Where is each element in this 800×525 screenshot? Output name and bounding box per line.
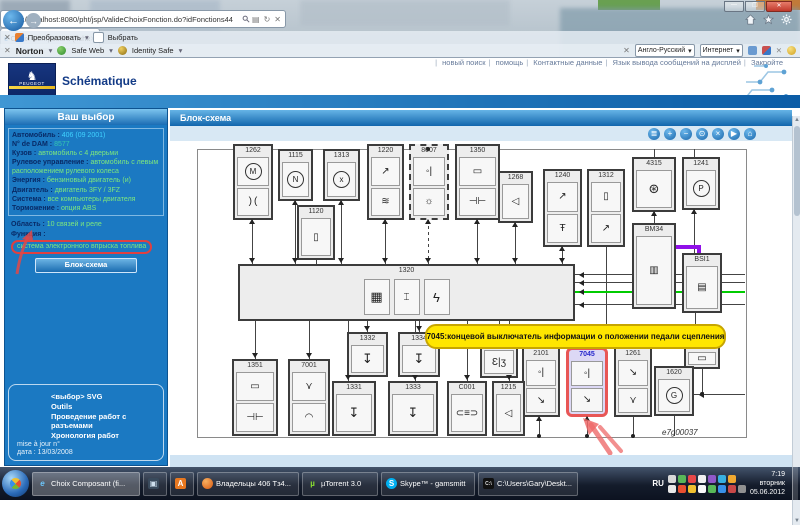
component-box-coil[interactable]: Ɛ|ʒ xyxy=(480,346,518,378)
vehicle-row: N° de DAM : 8577 xyxy=(12,140,160,149)
arrowhead-icon xyxy=(576,289,584,295)
component-box-C001[interactable]: C001⊂≡⊃ xyxy=(447,381,487,436)
component-symbols: ⊂≡⊃ xyxy=(449,392,485,434)
tray-icon[interactable] xyxy=(688,485,696,493)
component-symbols: ▯↗ xyxy=(589,180,623,245)
component-tooltip: 7045:концевой выключатель информации о п… xyxy=(425,324,726,349)
tray-icon[interactable] xyxy=(698,485,706,493)
scroll-up-icon[interactable]: ▲ xyxy=(793,117,800,123)
home-icon[interactable]: ⌂ xyxy=(744,128,756,140)
sidebar-footer-link[interactable]: <выбор> SVG xyxy=(51,392,163,401)
language-indicator[interactable]: RU xyxy=(652,479,664,488)
nav-link[interactable]: новый поиск xyxy=(442,58,485,67)
tray-icon[interactable] xyxy=(738,485,746,493)
command-bar: ✕ Преобразовать ▾ Выбрать xyxy=(0,31,800,44)
tray-icon[interactable] xyxy=(718,475,726,483)
tray-icon[interactable] xyxy=(718,485,726,493)
row-label: Кузов : xyxy=(12,150,38,157)
tray-icon[interactable] xyxy=(698,475,706,483)
select-button[interactable]: Выбрать xyxy=(108,33,138,42)
component-box-1261[interactable]: 1261↘⋎ xyxy=(614,347,652,417)
safe-web-icon xyxy=(57,46,66,55)
identity-safe-icon xyxy=(118,46,127,55)
taskbar-buttons: eChoix Composant (fi...▣AВладельцы 406 Т… xyxy=(32,472,578,496)
settings-gear-icon[interactable] xyxy=(781,14,792,25)
page-scrollbar[interactable]: ▲ ▼ xyxy=(792,116,800,525)
start-button[interactable] xyxy=(2,470,29,497)
component-symbols: ◦|↘ xyxy=(569,359,605,414)
vehicle-row: Двигатель : двигатель 3FY / 3FZ xyxy=(12,186,160,195)
component-label: 1215 xyxy=(494,383,523,392)
row-label: Функция : xyxy=(11,231,46,238)
component-box-7001[interactable]: 7001⋎◠ xyxy=(288,359,330,436)
arrowhead-icon xyxy=(651,208,657,216)
clock-day: вторник xyxy=(750,479,785,488)
component-box-1351[interactable]: 1351▭⊣⊢ xyxy=(232,359,278,436)
arrowhead-icon xyxy=(249,258,255,266)
circle-symbol: x xyxy=(333,171,350,188)
component-symbols: ⋎◠ xyxy=(290,370,328,434)
flap-symbol-icon: ↗ xyxy=(591,214,621,244)
taskbar-button-label: µTorrent 3.0 xyxy=(321,479,361,488)
component-symbols: ◦|☼ xyxy=(411,155,447,218)
home-icon[interactable] xyxy=(745,14,756,25)
arrowhead-icon xyxy=(512,258,518,266)
app-icon: ▣ xyxy=(148,478,159,489)
diagram-toolbar: ≣+−⊙×▶⌂ xyxy=(170,126,792,141)
motor-symbol-icon: M xyxy=(237,157,269,186)
flap-symbol-icon: ↗ xyxy=(547,182,578,212)
arrowhead-icon xyxy=(512,219,518,227)
arrowhead-icon xyxy=(559,243,565,251)
wire-line xyxy=(702,369,703,394)
app-title: Schématique xyxy=(62,74,137,88)
search-icon[interactable] xyxy=(242,15,250,23)
addons-icon[interactable] xyxy=(762,46,771,55)
chevron-down-icon: ▾ xyxy=(688,47,692,55)
chevron-down-icon: ▾ xyxy=(736,47,740,55)
wire-line xyxy=(606,247,607,331)
tray-icon[interactable] xyxy=(728,485,736,493)
taskbar-button-utorrent[interactable]: µµTorrent 3.0 xyxy=(302,472,378,496)
wire-line xyxy=(341,201,342,264)
component-symbols: ▭⊣⊢ xyxy=(457,155,498,218)
arrowhead-icon xyxy=(576,302,584,308)
tray-icon[interactable] xyxy=(678,485,686,493)
vehicle-row: Кузов : автомобиль с 4 дверьми xyxy=(12,149,160,158)
component-box-1120[interactable]: 1120▯ xyxy=(297,205,335,260)
arrowhead-icon xyxy=(425,216,431,224)
tray-icon-row xyxy=(668,475,746,483)
sidebar-footer-link[interactable]: Outils xyxy=(51,402,163,411)
contact-symbol-icon: ◦| xyxy=(413,157,445,186)
component-label: C001 xyxy=(449,383,485,392)
temp-symbol-icon: ≋ xyxy=(371,188,400,217)
component-symbols: ▯ xyxy=(299,216,333,258)
arrowhead-icon xyxy=(691,206,697,214)
firefox-icon xyxy=(202,478,213,489)
arrowhead-icon xyxy=(536,413,542,421)
component-label: BM34 xyxy=(634,225,674,234)
diode-symbol-icon: ◁ xyxy=(502,184,529,219)
clock-date: 05.06.2012 xyxy=(750,488,785,497)
component-box-7045[interactable]: 7045◦|↘ xyxy=(566,347,608,417)
annotation-oval: система электронного впрыска топлива xyxy=(11,240,152,254)
tray-icon[interactable] xyxy=(728,475,736,483)
image-menu-icon[interactable] xyxy=(748,46,757,55)
taskbar-button-label: Skype™ - gamsmitt xyxy=(400,479,465,488)
safe-web-button[interactable]: Safe Web xyxy=(71,46,104,55)
component-box-1262[interactable]: 1262M) ( xyxy=(233,144,273,220)
row-label: Рулевое управление : xyxy=(12,159,90,166)
arrowhead-icon xyxy=(474,216,480,224)
vehicle-row: Торможение : опция ABS xyxy=(12,204,160,213)
scroll-down-icon[interactable]: ▼ xyxy=(793,518,800,524)
play-icon[interactable]: ▶ xyxy=(728,128,740,140)
close-addon-icon[interactable]: ✕ xyxy=(623,46,630,55)
taskbar-button-skype[interactable]: SSkype™ - gamsmitt xyxy=(381,472,475,496)
component-label: 1333 xyxy=(390,383,436,392)
convert-button[interactable]: Преобразовать xyxy=(28,33,81,42)
row-label: Двигатель : xyxy=(12,187,55,194)
language-dropdown[interactable]: Англо-Русский▾ xyxy=(635,44,695,57)
compatibility-icon[interactable]: ▤ xyxy=(252,15,260,24)
throttle-symbol-icon: ) ( xyxy=(237,188,269,217)
diagram-header: Блок-схема xyxy=(170,110,792,126)
arrowhead-icon xyxy=(416,326,422,334)
address-bar[interactable]: e http://localhost:8080/pht/jsp/ValideCh… xyxy=(0,10,286,28)
main-panel: Блок-схема ≣+−⊙×▶⌂ 1262M) (1115N1313x112… xyxy=(170,110,792,467)
component-box-1215[interactable]: 1215◁ xyxy=(492,381,525,436)
piston-symbol-icon: ▯ xyxy=(591,182,621,212)
component-label: 1313 xyxy=(325,151,358,160)
tray-icon[interactable] xyxy=(708,485,716,493)
abbyy-icon: A xyxy=(175,478,186,489)
tray-icon[interactable] xyxy=(668,475,676,483)
vehicle-row: Рулевое управление : автомобиль с левым … xyxy=(12,158,160,176)
row-label: Торможение : xyxy=(12,205,61,212)
row-value: 8577 xyxy=(54,141,70,148)
arrowhead-icon xyxy=(464,375,470,383)
taskbar-button-firefox[interactable]: Владельцы 406 Тз4... xyxy=(197,472,299,496)
component-symbols: ▭ xyxy=(686,350,718,367)
component-label: 1350 xyxy=(457,146,498,155)
component-symbols: ▦⌶ϟ xyxy=(240,275,573,319)
component-label: 2101 xyxy=(524,349,558,358)
gauge-symbol-icon: ◠ xyxy=(292,403,326,432)
identity-safe-button[interactable]: Identity Safe xyxy=(132,46,174,55)
row-value: 10 связей и реле xyxy=(47,221,102,228)
browser-action-icons xyxy=(745,14,792,25)
circleG-symbol-icon: G xyxy=(658,379,690,412)
junction-dot xyxy=(631,434,635,438)
row-value: опция ABS xyxy=(61,205,96,212)
circle-symbol: P xyxy=(693,180,710,197)
circleP-symbol-icon: P xyxy=(686,170,716,206)
taskbar-button-label: C:\Users\Gary\Deskt... xyxy=(497,479,572,488)
component-label: BSI1 xyxy=(684,255,720,264)
norton-brand[interactable]: Norton xyxy=(16,46,44,56)
row-label: Автомобиль : xyxy=(12,132,62,139)
component-box-1620[interactable]: 1620G xyxy=(654,366,694,416)
arrowhead-icon xyxy=(559,258,565,266)
component-label: 1240 xyxy=(545,171,580,180)
vehicle-row: Автомобиль : 406 (09 2001) xyxy=(12,131,160,140)
component-label: 1241 xyxy=(684,159,718,168)
tray-icon[interactable] xyxy=(678,475,686,483)
peugeot-logo: ♞ PEUGEOT xyxy=(8,63,56,97)
component-box-1220[interactable]: 1220↗≋ xyxy=(367,144,404,220)
switch-symbol-icon: ↘ xyxy=(571,388,603,413)
arrowhead-icon xyxy=(249,216,255,224)
junction-dot xyxy=(537,434,541,438)
component-label: 1351 xyxy=(234,361,276,370)
refresh-icon[interactable]: ↻ xyxy=(264,15,271,24)
arrowhead-icon xyxy=(252,353,258,361)
taskbar-clock[interactable]: 7:19 вторник 05.06.2012 xyxy=(750,470,788,497)
taskbar-button-abbyy[interactable]: A xyxy=(170,472,194,496)
sidebar-footer-meta: дата : 13/03/2008 xyxy=(17,449,163,456)
convert-icon xyxy=(15,33,24,42)
contact-symbol-icon: ◦| xyxy=(571,361,603,386)
stop-icon[interactable]: ✕ xyxy=(274,15,281,24)
lightning-symbol-icon: ϟ xyxy=(424,279,450,315)
arrowhead-icon xyxy=(576,280,584,286)
browser-navigation-row: ← → e http://localhost:8080/pht/jsp/Vali… xyxy=(0,10,800,32)
arrowhead-icon xyxy=(292,197,298,205)
taskbar-button-app[interactable]: ▣ xyxy=(143,472,167,496)
component-symbols: Ɛ|ʒ xyxy=(482,348,516,376)
component-symbols: ▤ xyxy=(684,264,720,311)
injector-symbol-icon: ↧ xyxy=(336,394,372,432)
sidebar-title: Ваш выбор xyxy=(5,109,167,125)
sidebar-footer-link[interactable]: Проведение работ с разъемами xyxy=(51,412,163,430)
component-box-2101[interactable]: 2101◦|↘ xyxy=(522,347,560,417)
wire-line xyxy=(654,149,655,157)
component-label: 1320 xyxy=(240,266,573,275)
arrowhead-icon xyxy=(338,197,344,205)
component-label: 7001 xyxy=(290,361,328,370)
arrowhead-icon xyxy=(345,375,351,383)
component-box-1350[interactable]: 1350▭⊣⊢ xyxy=(455,144,500,220)
component-box-BSI1[interactable]: BSI1▤ xyxy=(682,253,722,313)
component-symbols: ↧ xyxy=(349,343,386,375)
component-label: 1262 xyxy=(235,146,271,155)
component-symbols: P xyxy=(684,168,718,208)
row-value: все компьютеры двигателя xyxy=(48,196,136,203)
junction-dot xyxy=(700,392,704,396)
vehicle-row: Энергия : бензиновый двигатель (и) xyxy=(12,176,160,185)
back-button[interactable]: ← xyxy=(3,10,24,31)
peugeot-lion-icon: ♞ xyxy=(27,71,38,81)
capacitor-symbol-icon: ⊣⊢ xyxy=(459,188,496,217)
arrowhead-icon xyxy=(576,272,584,278)
arrowhead-icon xyxy=(364,326,370,334)
taskbar-button-cmd[interactable]: C:\C:\Users\Gary\Deskt... xyxy=(478,472,578,496)
component-box-8007[interactable]: 8007◦|☼ xyxy=(409,144,449,220)
block-diagram-button[interactable]: Блок-схема xyxy=(35,258,137,273)
wire-line xyxy=(295,201,296,264)
component-box-BM34[interactable]: BM34▥ xyxy=(632,223,676,309)
row-value: автомобиль с 4 дверьми xyxy=(38,150,118,157)
utorrent-icon: µ xyxy=(307,478,318,489)
web-page: | новый поиск| помощь| Контактные данные… xyxy=(0,58,800,467)
piston-symbol-icon: ▯ xyxy=(301,218,331,256)
component-box-1241[interactable]: 1241P xyxy=(682,157,720,210)
component-symbols: ◦|↘ xyxy=(524,358,558,415)
logo-yellow-bar xyxy=(9,86,55,89)
capacitor-symbol-icon: ⊣⊢ xyxy=(236,403,274,432)
print-icon[interactable]: ≣ xyxy=(648,128,660,140)
norton-toolbar: ✕ Norton ▾ Safe Web ▾ Identity Safe ▾ ✕ … xyxy=(0,44,800,58)
component-box-1333[interactable]: 1333↧ xyxy=(388,381,438,436)
component-symbols: ↧ xyxy=(334,392,374,434)
component-box-1331[interactable]: 1331↧ xyxy=(332,381,376,436)
taskbar-button-label: Choix Composant (fi... xyxy=(51,479,125,488)
component-box-1240[interactable]: 1240↗Ŧ xyxy=(543,169,582,247)
component-symbols: x xyxy=(325,160,358,199)
arrowhead-icon xyxy=(584,413,590,421)
ecu-symbol-icon: ▥ xyxy=(636,236,672,305)
tools-cut-icon[interactable]: ✕ xyxy=(776,46,782,55)
bulb-icon[interactable] xyxy=(787,46,796,55)
nav-link[interactable]: помощь xyxy=(496,58,524,67)
close-toolbar-icon[interactable]: ✕ xyxy=(4,33,11,42)
cmd-icon: C:\ xyxy=(483,478,494,489)
row-value: бензиновый двигатель (и) xyxy=(47,177,131,184)
windows-taskbar: eChoix Composant (fi...▣AВладельцы 406 Т… xyxy=(0,467,800,500)
circle-symbol: M xyxy=(245,163,262,180)
component-label: 1261 xyxy=(616,349,650,358)
switch-symbol-icon: ↘ xyxy=(618,360,648,386)
taskbar-button-ie[interactable]: eChoix Composant (fi... xyxy=(32,472,140,496)
component-symbols: N xyxy=(280,160,311,199)
arrowhead-icon xyxy=(474,258,480,266)
ie-icon: e xyxy=(37,478,48,489)
resistor-symbol-icon: ▭ xyxy=(459,157,496,186)
main-footer-strip xyxy=(170,455,792,467)
component-label: 1220 xyxy=(369,146,402,155)
browser-chrome: — ❐ ✕ ← → e http://localhost:8080/pht/js… xyxy=(0,0,800,58)
row-label: N° de DAM : xyxy=(12,141,54,148)
circleX-symbol-icon: x xyxy=(327,162,356,197)
header-band xyxy=(0,95,800,108)
skype-icon: S xyxy=(386,478,397,489)
mini-symbol-icon: ▭ xyxy=(688,352,716,365)
zoom-in-icon[interactable]: + xyxy=(664,128,676,140)
zone-dropdown[interactable]: Интернет▾ xyxy=(700,44,743,57)
magnifier-icon[interactable]: ⊙ xyxy=(696,128,708,140)
component-label: 7045 xyxy=(569,350,605,359)
zoom-out-icon[interactable]: − xyxy=(680,128,692,140)
switch-symbol-icon: ↘ xyxy=(526,388,556,414)
scrollbar-thumb[interactable] xyxy=(794,126,800,216)
chevron-down-icon: ▾ xyxy=(179,46,183,55)
component-symbols: G xyxy=(656,377,692,414)
circleN-symbol-icon: N xyxy=(282,162,309,197)
component-box-1313[interactable]: 1313x xyxy=(323,149,360,201)
diagram-reference: e7g00037 xyxy=(662,428,698,437)
tempkey-symbol-icon: Ŧ xyxy=(547,214,578,244)
tray-icon[interactable] xyxy=(668,485,676,493)
arrowhead-icon xyxy=(306,353,312,361)
component-box-1115[interactable]: 1115N xyxy=(278,149,313,201)
chevron-down-icon: ▾ xyxy=(49,46,53,55)
sidebar-footer-panel: <выбор> SVGOutilsПроведение работ с разъ… xyxy=(8,384,164,461)
component-box-1320[interactable]: 1320▦⌶ϟ xyxy=(238,264,575,321)
tray-icon[interactable] xyxy=(688,475,696,483)
tray-icon[interactable] xyxy=(708,475,716,483)
selection-row: Область : 10 связей и реле xyxy=(11,220,161,230)
component-label: 1268 xyxy=(500,173,531,182)
wye-symbol-icon: ⋎ xyxy=(292,372,326,401)
arrowhead-icon xyxy=(506,375,512,383)
junction-dot xyxy=(426,147,430,151)
component-symbols: ◁ xyxy=(494,392,523,434)
component-label: 1331 xyxy=(334,383,374,392)
component-label: 1312 xyxy=(589,171,623,180)
component-symbols: ⊛ xyxy=(634,168,674,210)
selection-row: Функция : система электронного впрыска т… xyxy=(11,230,161,254)
clock-time: 7:19 xyxy=(750,470,785,479)
chevron-down-icon: ▾ xyxy=(109,46,113,55)
wire-line xyxy=(694,149,695,157)
component-box-1312[interactable]: 1312▯↗ xyxy=(587,169,625,247)
close-icon[interactable]: × xyxy=(712,128,724,140)
vehicle-row: Система : все компьютеры двигателя xyxy=(12,195,160,204)
junction-dot xyxy=(585,434,589,438)
component-symbols: M) ( xyxy=(235,155,271,218)
fan-symbol-icon: ⊛ xyxy=(636,170,672,208)
sun-symbol-icon: ☼ xyxy=(413,188,445,217)
component-box-4315[interactable]: 4315⊛ xyxy=(632,157,676,212)
component-label: 1120 xyxy=(299,207,333,216)
selection-sidebar: Ваш выбор Автомобиль : 406 (09 2001)N° d… xyxy=(4,108,168,466)
taskbar-button-label: Владельцы 406 Тз4... xyxy=(216,479,291,488)
spark-symbol-icon: ⌶ xyxy=(394,279,420,315)
injector-symbol-icon: ↧ xyxy=(392,394,434,432)
component-label: 1115 xyxy=(280,151,311,160)
arrowhead-icon xyxy=(382,216,388,224)
coil-symbol-icon: Ɛ|ʒ xyxy=(484,350,514,374)
show-desktop-button[interactable] xyxy=(792,467,798,500)
chevron-down-icon[interactable]: ▾ xyxy=(85,33,89,42)
sidebar-footer-meta: mise à jour n° xyxy=(17,441,163,448)
component-box-1332[interactable]: 1332↧ xyxy=(347,332,388,377)
component-symbols: ↗Ŧ xyxy=(545,180,580,245)
component-symbols: ↘⋎ xyxy=(616,358,650,415)
circle-symbol: N xyxy=(287,171,304,188)
ecu2-symbol-icon: ▤ xyxy=(686,266,718,309)
nav-link[interactable]: Язык вывода сообщений на дисплей xyxy=(613,58,741,67)
injector-symbol-icon: ↧ xyxy=(351,345,384,373)
selection-summary: Область : 10 связей и релеФункция : сист… xyxy=(8,219,164,255)
favorites-star-icon[interactable] xyxy=(763,14,774,25)
url-text[interactable]: http://localhost:8080/pht/jsp/ValideChoi… xyxy=(10,15,242,24)
nav-link[interactable]: Контактные данные xyxy=(533,58,602,67)
close-norton-icon[interactable]: ✕ xyxy=(4,46,11,55)
sidebar-footer-link[interactable]: Хронология работ xyxy=(51,431,163,440)
circle-symbol: G xyxy=(666,387,683,404)
component-label: 4315 xyxy=(634,159,674,168)
tray-icon-row xyxy=(668,485,746,493)
block-diagram-canvas: 1262M) (1115N1313x1120▯1220↗≋8007◦|☼1350… xyxy=(170,141,792,455)
diode-symbol-icon: ◁ xyxy=(496,394,521,432)
row-value: двигатель 3FY / 3FZ xyxy=(55,187,120,194)
component-box-1268[interactable]: 1268◁ xyxy=(498,171,533,223)
forward-button[interactable]: → xyxy=(26,13,41,28)
system-tray: RU 7:19 вторник 05.06.2012 xyxy=(652,467,798,500)
